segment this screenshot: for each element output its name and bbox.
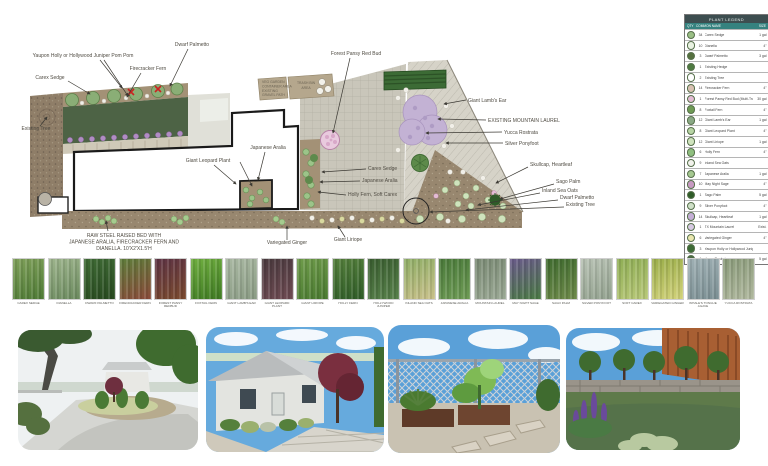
legend-plant-name: Dianella	[705, 44, 753, 48]
plant-photo-caption: GIANT LEOPARD PLANT	[261, 302, 294, 310]
legend-qty: 12	[697, 140, 705, 144]
legend-size: 5 gal	[753, 193, 767, 197]
legend-size: Exist.	[753, 225, 767, 229]
legend-plant-name: Forest Pansy Red Bud (Multi-Trunk)	[705, 97, 753, 101]
legend-row: 14 Skullcap, Heartleaf 1 gal	[685, 211, 768, 222]
courtyard-bed	[240, 180, 272, 209]
plan-label: Japanese Aralia	[250, 145, 286, 151]
legend-plant-swatch	[687, 127, 696, 136]
plan-label: Dwarf Palmetto	[175, 42, 209, 48]
plant-photo-caption: MAY NIGHT SAGE	[509, 302, 542, 306]
legend-plant-name: Holly Fern	[705, 150, 753, 154]
plant-thumbnail: SAGO PALM	[545, 258, 578, 309]
legend-plant-name: Japanese Aralia	[705, 172, 753, 176]
plant-photo	[332, 258, 365, 300]
legend-plant-name: Sago Palm	[705, 193, 753, 197]
plan-label: EXISTING MOUNTAIN LAUREL	[488, 118, 560, 124]
leader-line	[100, 60, 122, 88]
legend-plant-swatch	[687, 180, 696, 189]
plant-photo	[438, 258, 471, 300]
plant-photo-caption: DIANELLA	[48, 302, 81, 306]
legend-row: 9 Silver Ponyfoot 4"	[685, 200, 768, 211]
plan-label: Giant Liriope	[334, 237, 363, 243]
legend-title: PLANT LEGEND	[685, 15, 768, 23]
legend-qty: 3	[697, 247, 705, 251]
plant-photo	[509, 258, 542, 300]
evergreen-shrub-symbol	[412, 155, 429, 172]
plant-photo-caption: HOLLYWOOD JUNIPER	[367, 302, 400, 310]
legend-qty: 14	[697, 215, 705, 219]
plant-photo	[367, 258, 400, 300]
legend-size: 4"	[753, 129, 767, 133]
legend-row: 1 TX Mountain Laurel Exist.	[685, 221, 768, 232]
plan-label: JAPANESE ARALIA, FIRECRACKER FERN AND	[69, 240, 179, 246]
legend-qty: 1	[697, 65, 705, 69]
legend-size: 30 gal	[753, 97, 767, 101]
legend-size: 1 gal	[753, 172, 767, 176]
legend-plant-name: Giant Lamb's Ear	[705, 118, 753, 122]
legend-qty: 6	[697, 236, 705, 240]
plan-label: AREA	[301, 86, 311, 90]
plant-photo-caption: HOLLY FERN	[332, 302, 365, 306]
legend-plant-swatch	[687, 52, 696, 61]
plant-photo-caption: VARIEGATED GINGER	[651, 302, 684, 306]
existing-hedge	[384, 70, 446, 90]
plan-label: Existing Tree	[566, 202, 595, 208]
plan-label: DIANELLA. 10'X2'X1.5'H	[96, 246, 152, 252]
legend-row: 34 Carex Sedge 1 gal	[685, 29, 768, 40]
legend-row: 9 Inland Sea Oats	[685, 157, 768, 168]
plant-photo-caption: FOREST PANSY REDBUD	[154, 302, 187, 310]
plant-thumbnail: GIANT LIRIOPE	[296, 258, 329, 309]
legend-qty: 3	[697, 54, 705, 58]
plant-thumbnail: DWARF PALMETTO	[83, 258, 116, 309]
legend-qty: 8	[697, 108, 705, 112]
legend-qty: 6	[697, 150, 705, 154]
plant-thumbnail: HOLLY FERN	[332, 258, 365, 309]
plan-label: Forest Pansy Red Bud	[331, 51, 382, 57]
render-front-driveway	[18, 330, 198, 450]
legend-size: 1 gal	[753, 118, 767, 122]
legend-plant-name: Silver Ponyfoot	[705, 204, 753, 208]
legend-plant-name: Existing Tree	[705, 76, 753, 80]
legend-plant-name: Firecracker Fern	[705, 86, 753, 90]
legend-size: 4"	[753, 44, 767, 48]
plant-thumbnail: GIANT LEOPARD PLANT	[261, 258, 294, 309]
legend-plant-swatch	[687, 234, 696, 243]
plant-photo	[296, 258, 329, 300]
plan-label: Carex Sedge	[368, 166, 397, 172]
legend-plant-name: Carex Sedge	[705, 33, 753, 37]
legend-plant-name: Existing Hedge	[705, 65, 753, 69]
legend-plant-name: Skullcap, Heartleaf	[705, 215, 753, 219]
legend-row: 10 Dianella 4"	[685, 40, 768, 51]
plant-photo-caption: FIRECRACKER FERN	[119, 302, 152, 306]
legend-size: 4"	[753, 204, 767, 208]
legend-plant-name: Giant Liriope	[705, 140, 753, 144]
plan-label: Carex Sedge	[35, 75, 64, 81]
plant-thumbnail: FIRECRACKER FERN	[119, 258, 152, 309]
legend-row: 12 Giant Lamb's Ear 1 gal	[685, 115, 768, 126]
legend-row: 1 Forest Pansy Red Bud (Multi-Trunk) 30 …	[685, 93, 768, 104]
plant-photo	[12, 258, 45, 300]
legend-row: 3 Dwarf Palmetto 3 gal	[685, 50, 768, 61]
legend-plant-swatch	[687, 63, 696, 72]
legend-size: 1 gal	[753, 140, 767, 144]
plant-photo	[474, 258, 507, 300]
plant-photo-caption: JAPANESE ARALIA	[438, 302, 471, 306]
plant-thumbnail: YUCCA ROSTRATA	[722, 258, 755, 309]
plant-thumbnail: FOREST PANSY REDBUD	[154, 258, 187, 309]
legend-row: 6 Holly Fern 4"	[685, 147, 768, 158]
plan-label: Variegated Ginger	[267, 240, 308, 246]
plan-label: VEG GARDEN	[262, 80, 285, 84]
legend-size: 4"	[753, 150, 767, 154]
plant-thumbnail: GIANT LAMB'S EAR	[225, 258, 258, 309]
plan-label: Dwarf Palmetto	[560, 195, 594, 201]
red-bud-tree-symbol	[321, 131, 340, 150]
legend-plant-name: Foxtail Fern	[705, 108, 753, 112]
plant-photo	[190, 258, 223, 300]
plant-photo-caption: GIANT LIRIOPE	[296, 302, 329, 306]
legend-plant-swatch	[687, 223, 696, 232]
legend-plant-name: Variegated Ginger	[705, 236, 753, 240]
legend-row: 1 Sago Palm 5 gal	[685, 189, 768, 200]
legend-col-name: COMMON NAME	[696, 24, 752, 28]
legend-qty: 2	[697, 76, 705, 80]
plant-thumbnail: MOUNTAIN LAUREL	[474, 258, 507, 309]
legend-qty: 1	[697, 97, 705, 101]
plant-photo-caption: MOUNTAIN LAUREL	[474, 302, 507, 306]
plant-photo-strip: CAREX SEDGE DIANELLA DWARF PALMETTO FIRE…	[12, 258, 758, 309]
plant-thumbnail: MAY NIGHT SAGE	[509, 258, 542, 309]
plant-photo-caption: SILVER PONYFOOT	[580, 302, 613, 306]
legend-plant-swatch	[687, 148, 696, 157]
legend-size: 1 gal	[753, 215, 767, 219]
plant-photo	[580, 258, 613, 300]
legend-plant-name: Giant Leopard Plant	[705, 129, 753, 133]
plant-photo	[119, 258, 152, 300]
plant-thumbnail: SILVER PONYFOOT	[580, 258, 613, 309]
plan-label: Yucca Rostrata	[504, 130, 538, 136]
legend-plant-name: TX Mountain Laurel	[705, 225, 753, 229]
legend-plant-name: May Night Sage	[705, 182, 753, 186]
plant-photo	[722, 258, 755, 300]
plant-thumbnail: SOFT CAREX	[616, 258, 649, 309]
legend-plant-swatch	[687, 73, 696, 82]
landscape-plan-sheet: Yaupon Holly or Hollywood Juniper Pom Po…	[0, 0, 768, 466]
plant-photo	[48, 258, 81, 300]
plant-photo-caption: CAREX SEDGE	[12, 302, 45, 306]
legend-row: 10 May Night Sage 4"	[685, 179, 768, 190]
legend-size: 4"	[753, 86, 767, 90]
plant-photo-caption: WHALE'S TONGUE AGAVE	[687, 302, 720, 310]
legend-plant-swatch	[687, 116, 696, 125]
plan-label: Existing Tree	[22, 126, 51, 132]
plant-photo	[545, 258, 578, 300]
plant-photo	[83, 258, 116, 300]
plan-label: Holly Fern, Soft Carex	[348, 192, 398, 198]
window	[240, 389, 256, 409]
legend-row: 1 Existing Hedge	[685, 61, 768, 72]
legend-plant-swatch	[687, 170, 696, 179]
plan-label: RAW STEEL RAISED BED WITH	[87, 233, 162, 239]
plant-photo-caption: INLAND SEA OATS	[403, 302, 436, 306]
plant-legend: PLANT LEGEND QTY COMMON NAME SIZE 34 Car…	[684, 14, 768, 265]
corner-shrub	[536, 379, 560, 411]
render-house-front	[206, 327, 384, 452]
plant-photo-caption: YUCCA ROSTRATA	[722, 302, 755, 306]
legend-qty: 12	[697, 118, 705, 122]
legend-row: 2 Existing Tree	[685, 72, 768, 83]
plant-thumbnail: JAPANESE ARALIA	[438, 258, 471, 309]
plan-label: Inland Sea Oats	[542, 188, 578, 194]
plant-photo	[403, 258, 436, 300]
legend-qty: 7	[697, 172, 705, 176]
plan-label: Giant Leopard Plant	[186, 158, 231, 164]
plant-photo-caption: FOXTAIL FERN	[190, 302, 223, 306]
sago-palm-symbol	[488, 193, 502, 207]
side-hedge	[374, 347, 384, 427]
legend-size: 3 gal	[753, 54, 767, 58]
legend-row: 7 Japanese Aralia 1 gal	[685, 168, 768, 179]
slab-panel	[200, 98, 228, 122]
legend-row: 6 Variegated Ginger 4"	[685, 232, 768, 243]
window-2	[302, 385, 316, 403]
plan-label: Firecracker Fern	[130, 66, 167, 72]
plant-photo-caption: SOFT CAREX	[616, 302, 649, 306]
plan-label: Silver Ponyfoot	[505, 141, 539, 147]
legend-col-size: SIZE	[752, 24, 766, 28]
plant-thumbnail: HOLLYWOOD JUNIPER	[367, 258, 400, 309]
plant-photo-caption: GIANT LAMB'S EAR	[225, 302, 258, 306]
plant-photo	[261, 258, 294, 300]
bottom-bed	[62, 211, 522, 229]
utility-circle	[39, 193, 52, 206]
legend-plant-name: Inland Sea Oats	[705, 161, 753, 165]
legend-qty: 34	[697, 33, 705, 37]
legend-size: 4"	[753, 108, 767, 112]
legend-plant-swatch	[687, 191, 696, 200]
legend-qty: 10	[697, 182, 705, 186]
plan-label: GRAVEL PATH	[262, 93, 285, 97]
render-backyard-lawn	[566, 328, 740, 450]
legend-qty: 1	[697, 193, 705, 197]
legend-body: 34 Carex Sedge 1 gal 10 Dianella 4" 3 Dw…	[685, 29, 768, 264]
legend-plant-swatch	[687, 31, 696, 40]
legend-qty: 10	[697, 44, 705, 48]
plant-photo-caption: SAGO PALM	[545, 302, 578, 306]
legend-qty: 1	[697, 225, 705, 229]
legend-col-qty: QTY	[687, 24, 696, 28]
legend-size: 1 gal	[753, 33, 767, 37]
legend-qty: 8	[697, 129, 705, 133]
plan-label: Sago Palm	[556, 179, 580, 185]
legend-plant-swatch	[687, 212, 696, 221]
plant-photo	[687, 258, 720, 300]
legend-size: 4"	[753, 236, 767, 240]
render-side-yard-planters	[388, 325, 560, 453]
plant-photo	[616, 258, 649, 300]
plan-label: CONTAINER AREA	[262, 84, 292, 88]
plan-label: Giant Lamb's Ear	[468, 98, 507, 104]
plant-thumbnail: CAREX SEDGE	[12, 258, 45, 309]
legend-row: 12 Giant Liriope 1 gal	[685, 136, 768, 147]
plant-photo	[225, 258, 258, 300]
plan-label: Japanese Aralia	[362, 178, 398, 184]
plant-photo-caption: DWARF PALMETTO	[83, 302, 116, 306]
legend-plant-swatch	[687, 202, 696, 211]
plan-label: TRASH BIN	[297, 81, 316, 85]
plan-label: Skullcap, Heartleaf	[530, 162, 573, 168]
plant-photo	[154, 258, 187, 300]
site-plan-drawing: Yaupon Holly or Hollywood Juniper Pom Po…	[0, 0, 680, 256]
legend-plant-swatch	[687, 105, 696, 114]
legend-qty: 14	[697, 86, 705, 90]
plant-thumbnail: VARIEGATED GINGER	[651, 258, 684, 309]
legend-plant-name: Dwarf Palmetto	[705, 54, 753, 58]
plant-thumbnail: FOXTAIL FERN	[190, 258, 223, 309]
plan-label: EXISTING	[262, 89, 278, 93]
legend-size: 4"	[753, 182, 767, 186]
plan-label: Yaupon Holly or Hollywood Juniper Pom Po…	[33, 53, 134, 59]
plant-thumbnail: WHALE'S TONGUE AGAVE	[687, 258, 720, 309]
legend-row: 8 Giant Leopard Plant 4"	[685, 125, 768, 136]
legend-plant-name: Yaupon Holly or Hollywood Juniper Pom Po…	[705, 247, 753, 251]
legend-plant-swatch	[687, 159, 696, 168]
legend-plant-swatch	[687, 95, 696, 104]
legend-plant-swatch	[687, 137, 696, 146]
legend-plant-swatch	[687, 244, 696, 253]
legend-plant-swatch	[687, 84, 696, 93]
legend-plant-swatch	[687, 41, 696, 50]
legend-qty: 9	[697, 161, 705, 165]
plant-thumbnail: INLAND SEA OATS	[403, 258, 436, 309]
legend-row: 8 Foxtail Fern 4"	[685, 104, 768, 115]
legend-row: 3 Yaupon Holly or Hollywood Juniper Pom …	[685, 243, 768, 254]
leader-line	[170, 49, 188, 86]
legend-qty: 9	[697, 204, 705, 208]
plant-thumbnail: DIANELLA	[48, 258, 81, 309]
legend-row: 14 Firecracker Fern 4"	[685, 82, 768, 93]
plant-photo	[651, 258, 684, 300]
